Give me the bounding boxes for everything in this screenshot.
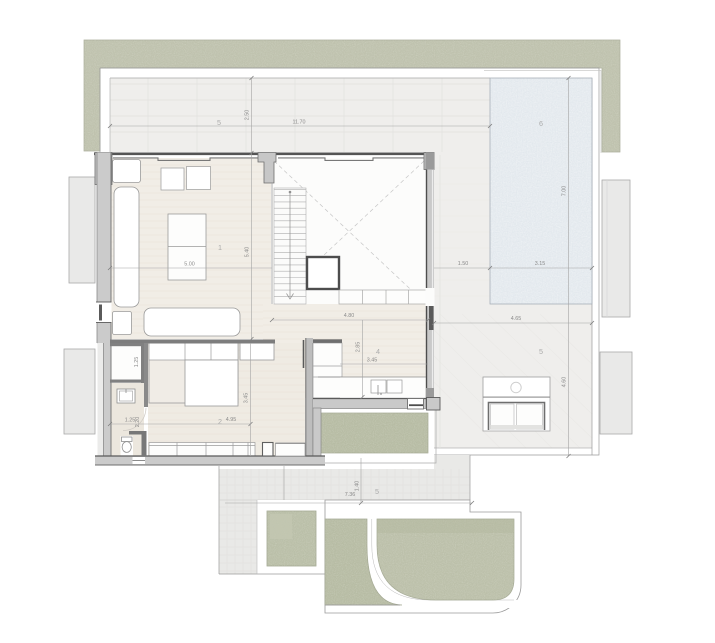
svg-text:4: 4 <box>376 347 380 356</box>
svg-text:7.00: 7.00 <box>562 186 568 197</box>
svg-text:5.40: 5.40 <box>245 247 251 258</box>
svg-text:4.65: 4.65 <box>511 316 522 322</box>
svg-text:5.00: 5.00 <box>184 262 195 268</box>
svg-text:1.25: 1.25 <box>134 357 140 368</box>
svg-text:3.45: 3.45 <box>367 358 378 364</box>
svg-text:7.36: 7.36 <box>345 492 356 498</box>
svg-text:3.15: 3.15 <box>535 261 546 267</box>
svg-text:1.50: 1.50 <box>458 261 469 267</box>
svg-text:2: 2 <box>218 417 222 426</box>
svg-text:6: 6 <box>539 119 543 128</box>
svg-text:3.45: 3.45 <box>244 393 250 404</box>
svg-text:4.95: 4.95 <box>226 417 237 423</box>
svg-text:11.70: 11.70 <box>292 120 305 126</box>
svg-text:4.60: 4.60 <box>562 377 568 388</box>
svg-text:2.85: 2.85 <box>356 342 362 353</box>
svg-text:5: 5 <box>217 118 221 127</box>
svg-text:1.40: 1.40 <box>355 481 361 492</box>
svg-text:5: 5 <box>539 347 543 356</box>
svg-text:1.25: 1.25 <box>125 418 136 424</box>
svg-text:5: 5 <box>375 487 379 496</box>
svg-text:2.50: 2.50 <box>245 110 251 121</box>
svg-text:1: 1 <box>218 243 222 252</box>
svg-text:2.20: 2.20 <box>135 417 141 428</box>
svg-text:4.80: 4.80 <box>344 313 355 319</box>
